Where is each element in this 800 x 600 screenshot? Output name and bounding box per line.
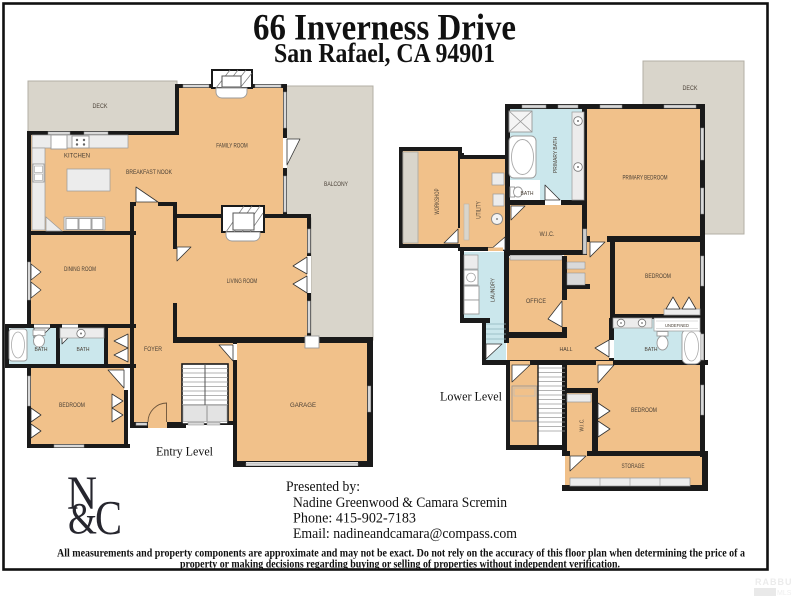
svg-text:BATH: BATH [35,347,48,353]
svg-text:BALCONY: BALCONY [324,181,348,188]
svg-text:LIVING ROOM: LIVING ROOM [227,278,258,285]
svg-text:OFFICE: OFFICE [526,298,546,305]
svg-text:W.I.C.: W.I.C. [540,231,555,238]
svg-text:PRIMARY BATH: PRIMARY BATH [553,137,559,173]
svg-text:Presented by:: Presented by: [286,479,360,495]
svg-text:BREAKFAST NOOK: BREAKFAST NOOK [126,169,172,176]
svg-text:W.I.C.: W.I.C. [580,419,586,432]
svg-text:Phone: 415-902-7183: Phone: 415-902-7183 [293,511,416,527]
svg-text:DECK: DECK [93,103,108,110]
svg-text:LAUNDRY: LAUNDRY [491,277,497,302]
svg-text:BEDROOM: BEDROOM [631,407,657,414]
svg-text:Entry Level: Entry Level [156,444,213,459]
svg-text:UTILITY: UTILITY [476,201,483,219]
svg-text:FAMILY ROOM: FAMILY ROOM [216,143,248,150]
svg-text:STORAGE: STORAGE [622,463,645,470]
svg-text:PRIMARY BEDROOM: PRIMARY BEDROOM [623,175,668,182]
svg-text:DINING ROOM: DINING ROOM [64,266,96,273]
svg-text:WORKSHOP: WORKSHOP [434,189,441,215]
svg-text:RABBU: RABBU [755,577,793,587]
svg-text:HALL: HALL [560,347,573,353]
svg-text:BATH: BATH [645,347,658,353]
svg-text:Nadine Greenwood & Camara Scre: Nadine Greenwood & Camara Scremin [293,495,507,511]
svg-text:MLS: MLS [777,590,792,597]
svg-text:Email: nadineandcamara@compass: Email: nadineandcamara@compass.com [293,526,517,542]
svg-text:UNDEFINED: UNDEFINED [665,323,689,329]
svg-text:DECK: DECK [683,85,698,92]
svg-text:BATH: BATH [521,191,534,197]
svg-text:KITCHEN: KITCHEN [64,153,90,160]
svg-text:BEDROOM: BEDROOM [59,402,85,409]
svg-text:BATH: BATH [77,347,90,353]
svg-text:BEDROOM: BEDROOM [645,273,671,280]
svg-text:FOYER: FOYER [144,346,163,353]
svg-text:&: & [68,494,97,543]
svg-text:Lower Level: Lower Level [440,389,502,404]
svg-text:GARAGE: GARAGE [290,402,316,409]
svg-text:property or making decisions r: property or making decisions regarding b… [180,559,620,571]
svg-text:C: C [95,490,122,545]
svg-text:San Rafael, CA 94901: San Rafael, CA 94901 [274,37,495,68]
